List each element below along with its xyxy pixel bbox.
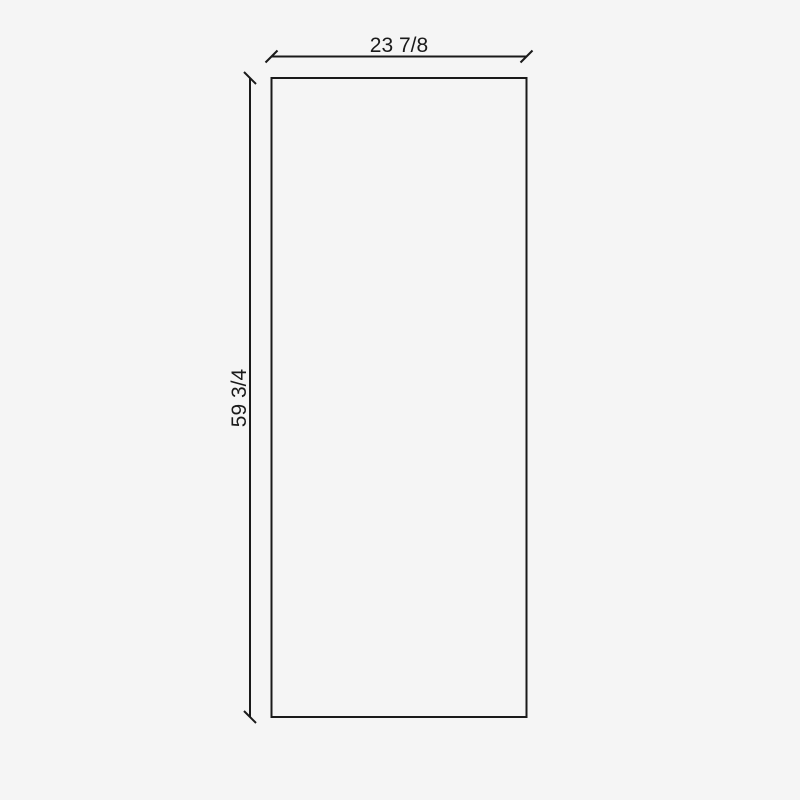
svg-text:59 3/4: 59 3/4 [228,368,251,427]
svg-text:23 7/8: 23 7/8 [370,34,428,57]
